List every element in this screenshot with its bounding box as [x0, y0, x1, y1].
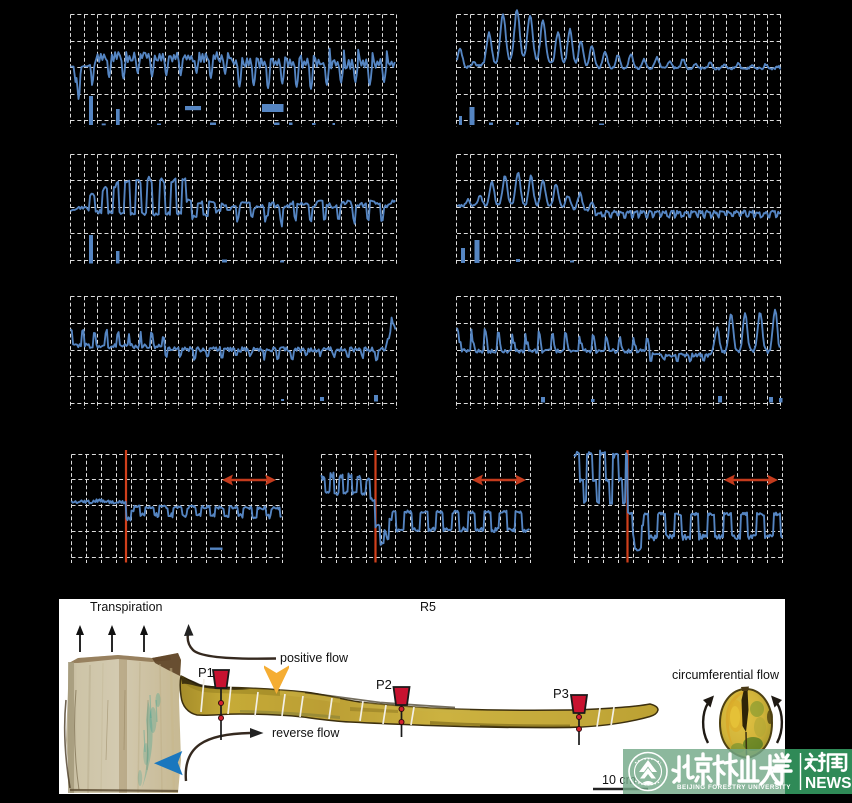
svg-text:P1: P1 [198, 665, 214, 680]
svg-text:R5: R5 [420, 600, 436, 614]
svg-text:NEWS: NEWS [805, 775, 852, 792]
svg-text:reverse flow: reverse flow [272, 726, 340, 740]
svg-text:positive flow: positive flow [280, 651, 349, 665]
svg-text:Transpiration: Transpiration [90, 600, 163, 614]
svg-text:P2: P2 [376, 677, 392, 692]
svg-text:BEIJING FORESTRY UNIVERSITY: BEIJING FORESTRY UNIVERSITY [677, 784, 791, 791]
svg-text:circumferential flow: circumferential flow [672, 668, 780, 682]
svg-text:P3: P3 [553, 686, 569, 701]
